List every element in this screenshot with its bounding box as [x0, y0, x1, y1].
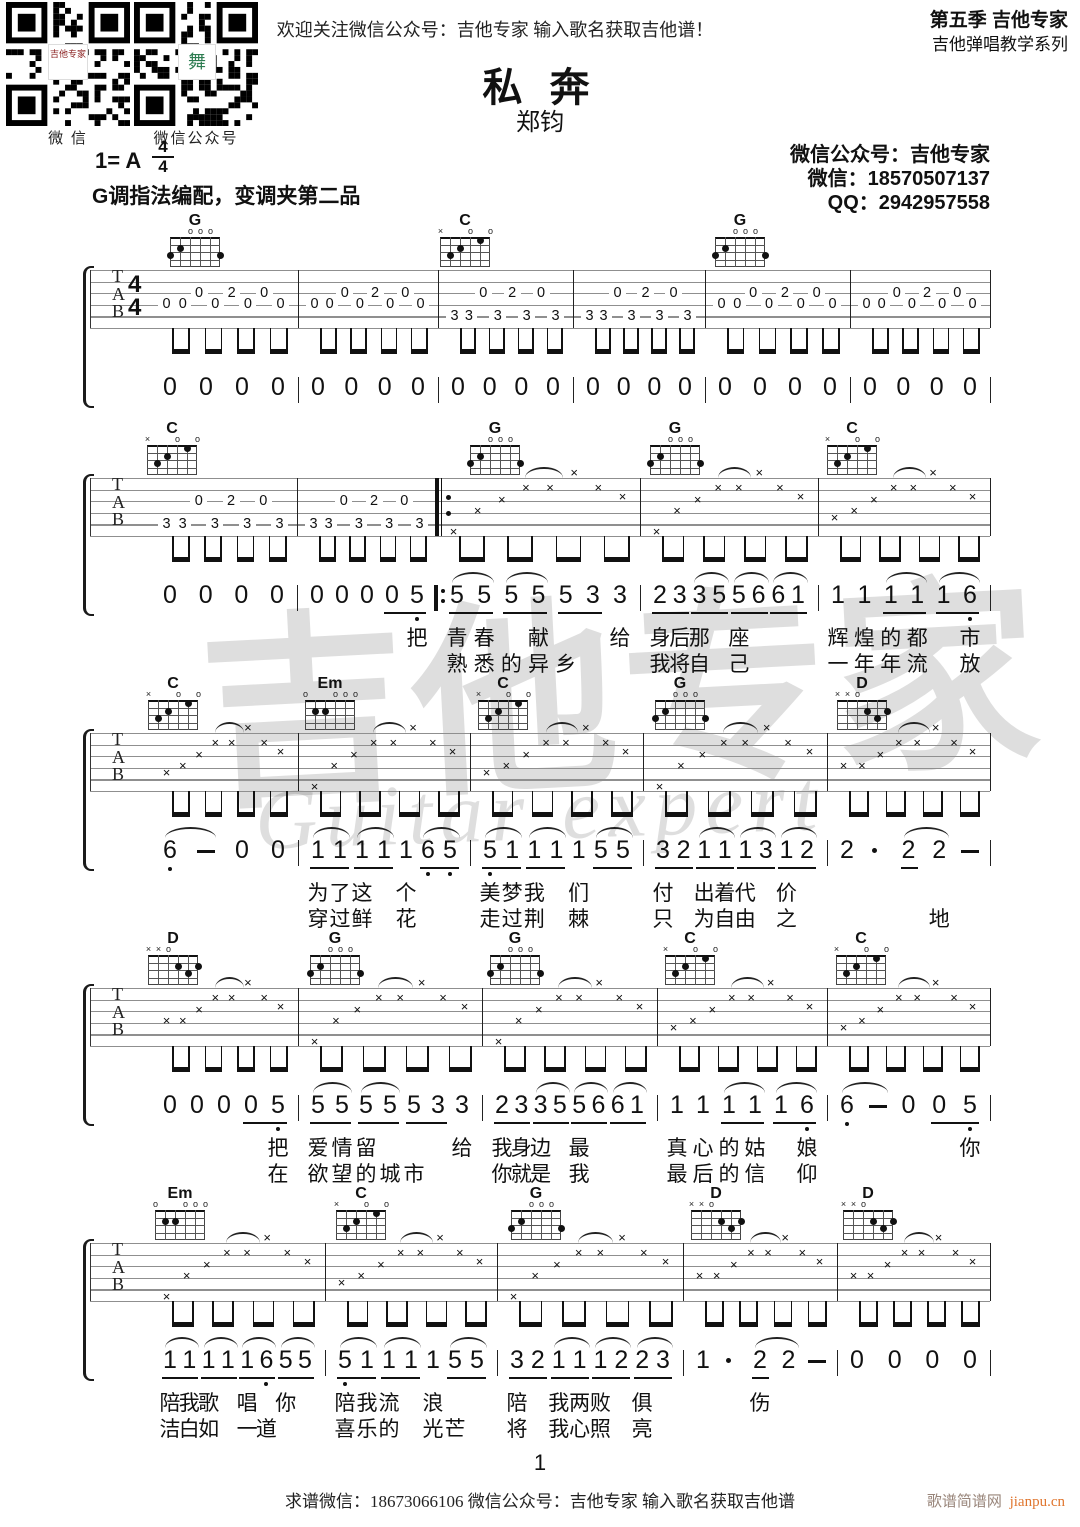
staff-line — [90, 791, 990, 792]
jianpu-note-number: 5 — [308, 1092, 328, 1119]
jianpu-note-number: 0 — [160, 374, 180, 401]
chord-open-marker: o — [524, 689, 533, 699]
chord-finger-dot — [853, 963, 860, 970]
jianpu-low-octave-dot — [264, 1382, 268, 1386]
jianpu-barline — [643, 840, 644, 866]
chord-muted-marker: × — [823, 434, 832, 444]
chord-name: G — [645, 675, 715, 693]
chord-muted-marker: × — [474, 689, 483, 699]
note-beam — [237, 349, 255, 354]
strum-x-note: × — [964, 744, 981, 760]
jianpu-note-number: 2 — [492, 1092, 512, 1119]
note-beam — [237, 812, 255, 817]
chord-open-marker: o — [676, 434, 685, 444]
strum-x-note: × — [471, 1254, 488, 1270]
strum-x-note: × — [905, 480, 922, 496]
lyric-line2-char: 乡 — [554, 648, 578, 678]
chord-open-marker: o — [751, 226, 760, 236]
jianpu-note-number: 0 — [241, 1092, 261, 1119]
strum-x-note: × — [392, 990, 409, 1006]
barline — [438, 270, 439, 328]
lyric-line2-char: 棘 — [567, 903, 591, 933]
jianpu-beam-underline — [420, 867, 459, 869]
note-beam — [923, 812, 943, 817]
chord-grid-fret — [147, 453, 197, 454]
tab-fret-number: 0 — [191, 285, 208, 301]
strum-x-note: × — [538, 735, 555, 751]
note-beam — [172, 812, 190, 817]
jianpu-note-number: 0 — [308, 374, 328, 401]
tab-fret-number: 0 — [713, 296, 730, 312]
jianpu-low-octave-dot — [448, 872, 452, 876]
staff-line — [90, 490, 990, 491]
strum-x-note: × — [614, 1230, 631, 1246]
jianpu-barline — [573, 377, 574, 403]
barline — [990, 733, 991, 791]
chord-muted-marker: × — [833, 689, 842, 699]
jianpu-note-number: 6 — [837, 1092, 857, 1119]
chord-open-marker: o — [193, 434, 202, 444]
tab-fret-number: 0 — [255, 493, 272, 509]
jianpu-note-number: 6 — [160, 837, 180, 864]
page-number: 1 — [0, 1450, 1080, 1476]
jianpu-beam-underline — [558, 612, 602, 614]
strum-x-note: × — [853, 1013, 870, 1029]
jianpu-note-number: 5 — [501, 582, 521, 609]
strum-x-note: × — [365, 735, 382, 751]
jianpu-note-number: 2 — [674, 837, 694, 864]
jianpu-note-number: 1 — [502, 837, 522, 864]
note-beam — [270, 1067, 288, 1072]
strum-x-note: × — [198, 1257, 215, 1273]
barline — [325, 1243, 326, 1301]
chord-finger-dot — [172, 1218, 179, 1225]
tie-arc — [898, 977, 929, 988]
jianpu-note-number: 1 — [374, 837, 394, 864]
jianpu-note-number: 0 — [614, 374, 634, 401]
jianpu-note-number: 6 — [749, 582, 769, 609]
jianpu-note-number: 0 — [382, 582, 402, 609]
chord-finger-dot — [864, 445, 871, 452]
jianpu-note-number: 0 — [860, 374, 880, 401]
jianpu-barline — [990, 840, 991, 866]
jianpu-note-number: 1 — [396, 837, 416, 864]
jianpu-beam-underline — [354, 867, 393, 869]
jianpu-dot — [726, 1358, 731, 1363]
chord-finger-dot — [162, 1218, 169, 1225]
note-beam — [406, 1067, 429, 1072]
strum-x-note: × — [372, 1257, 389, 1273]
jianpu-note-number: 0 — [960, 1347, 980, 1374]
note-beam — [319, 557, 336, 562]
jianpu-beam-underline — [936, 612, 979, 614]
note-beam — [886, 1067, 906, 1072]
jianpu-barline — [438, 377, 439, 403]
strum-x-note: × — [570, 1245, 587, 1261]
jianpu-beam-underline — [243, 1122, 287, 1124]
strum-x-note: × — [611, 990, 628, 1006]
chord-grid-fret — [336, 1233, 386, 1234]
chord-muted-marker: × — [687, 1199, 696, 1209]
note-beam — [757, 1067, 778, 1072]
chord-open-marker: o — [853, 689, 862, 699]
chord-finger-dot — [155, 715, 162, 722]
tab-fret-number: 0 — [808, 285, 825, 301]
jianpu-beam-underline — [883, 612, 926, 614]
staff-line — [90, 478, 990, 479]
note-beam — [253, 1322, 275, 1327]
strum-x-note: × — [964, 999, 981, 1015]
chord-open-marker: o — [174, 689, 183, 699]
jianpu-note-number: 1 — [570, 1347, 590, 1374]
tie-arc — [558, 977, 591, 988]
strum-x-note: × — [742, 1245, 759, 1261]
chord-open-marker: o — [862, 944, 871, 954]
lyric-line2-char: 放 — [958, 648, 982, 678]
note-beam — [849, 1067, 869, 1072]
jianpu-barline — [683, 1350, 684, 1376]
chord-finger-dot — [485, 715, 492, 722]
chord-open-marker: o — [331, 689, 340, 699]
jianpu-note-number: 0 — [196, 582, 216, 609]
note-beam — [320, 1067, 343, 1072]
strum-x-note: × — [794, 1245, 811, 1261]
note-beam — [705, 1322, 724, 1327]
strum-x-note: × — [158, 1013, 175, 1029]
strum-x-note: × — [191, 747, 208, 763]
jianpu-dot — [872, 848, 877, 853]
strum-x-note: × — [435, 990, 452, 1006]
chord-finger-dot — [457, 245, 464, 252]
note-beam — [651, 349, 667, 354]
chord-grid-fret — [715, 260, 765, 261]
chord-open-marker: o — [196, 226, 205, 236]
barline — [990, 270, 991, 328]
jianpu-note-number: 2 — [837, 837, 857, 864]
jianpu-repeat-barline — [434, 585, 438, 611]
jianpu-low-octave-dot — [343, 1382, 347, 1386]
strum-x-note: × — [657, 1254, 674, 1270]
strum-x-note: × — [518, 747, 535, 763]
strum-x-note: × — [780, 735, 797, 751]
jianpu-beam-underline — [494, 1122, 530, 1124]
strum-x-note: × — [835, 1020, 852, 1036]
tab-fret-number: 0 — [729, 296, 746, 312]
chord-finger-dot — [185, 700, 192, 707]
jianpu-note-number: 2 — [779, 1347, 799, 1374]
jianpu-barline — [640, 585, 641, 611]
jianpu-beam-underline — [406, 1122, 447, 1124]
jianpu-beam-underline — [381, 1377, 420, 1379]
tab-fret-number: 3 — [518, 308, 535, 324]
chord-open-marker: o — [466, 226, 475, 236]
jianpu-note-number: 0 — [196, 374, 216, 401]
strum-x-note: × — [469, 503, 486, 519]
chord-open-marker: o — [486, 226, 495, 236]
jianpu-note-number: 1 — [693, 1092, 713, 1119]
jianpu-beam-underline — [447, 1377, 486, 1379]
tab-fret-number: 3 — [547, 308, 564, 324]
jianpu-note-number: 5 — [529, 582, 549, 609]
chord-finger-dot — [508, 1225, 515, 1232]
lyric-line2-char: 光 — [421, 1413, 445, 1443]
barline — [827, 733, 828, 791]
jianpu-beam-underline — [652, 612, 689, 614]
lyric-line2-char: 由 — [733, 903, 757, 933]
strum-x-note: × — [413, 975, 430, 991]
strum-x-note: × — [451, 1245, 468, 1261]
tab-fret-number: 3 — [411, 516, 428, 532]
staff-line — [90, 524, 990, 525]
chord-grid-fret — [837, 723, 887, 724]
lyric-line1-char: 给 — [608, 622, 632, 652]
jianpu-note-number: 1 — [715, 837, 735, 864]
strum-x-note: × — [510, 1013, 527, 1029]
note-beam — [399, 812, 420, 817]
lyric-line2-char: 市 — [402, 1158, 426, 1188]
barline — [818, 478, 819, 536]
jianpu-note-number: 5 — [335, 1347, 355, 1374]
jianpu-note-number: 2 — [650, 582, 670, 609]
jianpu-low-octave-dot — [968, 617, 972, 621]
jianpu-note-number: 0 — [785, 374, 805, 401]
lyric-line2-char: 将 — [505, 1413, 529, 1443]
site-name: 歌谱简谱网 — [927, 1494, 1002, 1510]
chord-muted-marker: × — [832, 944, 841, 954]
strum-x-note: × — [835, 758, 852, 774]
jianpu-beam-underline — [526, 867, 565, 869]
lyric-line2-char: 信 — [743, 1158, 767, 1188]
jianpu-low-octave-dot — [426, 872, 430, 876]
note-beam — [460, 349, 476, 354]
jianpu-note-number: 0 — [675, 374, 695, 401]
barline — [657, 988, 658, 1046]
jianpu-note-number: 5 — [613, 837, 633, 864]
tie-arc — [718, 467, 752, 478]
strum-x-note: × — [548, 1257, 565, 1273]
chord-open-marker: o — [506, 944, 515, 954]
repeat-barline-thin — [441, 478, 442, 536]
jianpu-note-number: 5 — [440, 837, 460, 864]
jianpu-barline — [482, 1095, 483, 1121]
jianpu-low-octave-dot — [805, 1127, 809, 1131]
chord-grid-fret — [843, 1233, 893, 1234]
chord-finger-dot — [864, 708, 871, 715]
tie-arc — [373, 722, 406, 733]
jianpu-note-number: 1 — [693, 1347, 713, 1374]
jianpu-barline — [705, 377, 706, 403]
chord-finger-dot — [728, 1225, 735, 1232]
jianpu-note-number: 1 — [881, 582, 901, 609]
lyric-line2-char: 我 — [567, 1158, 591, 1188]
jianpu-note-number: 0 — [231, 582, 251, 609]
chord-open-marker: o — [351, 689, 360, 699]
chord-open-marker: o — [741, 226, 750, 236]
chord-muted-marker: × — [849, 1199, 858, 1209]
jianpu-note-number: 0 — [960, 374, 980, 401]
jianpu-beam-underline — [278, 1377, 314, 1379]
jianpu-barline — [297, 585, 298, 611]
lyric-line2-char: 乐 — [355, 1413, 379, 1443]
strum-x-note: × — [964, 1254, 981, 1270]
note-beam — [902, 349, 919, 354]
jianpu-note-number: 3 — [653, 1347, 673, 1374]
jianpu-note-number: 5 — [556, 582, 576, 609]
tab-fret-number: 3 — [206, 516, 223, 532]
chord-open-marker: o — [382, 1199, 391, 1209]
note-beam — [459, 557, 485, 562]
chord-muted-marker: × — [144, 689, 153, 699]
jianpu-beam-underline — [691, 612, 728, 614]
chord-open-marker: o — [362, 1199, 371, 1209]
chord-open-marker: o — [691, 944, 700, 954]
chord-grid-fret — [655, 715, 705, 716]
chord-muted-marker: × — [843, 689, 852, 699]
chord-finger-dot — [317, 963, 324, 970]
jianpu-note-number: 0 — [893, 374, 913, 401]
jianpu-note-number: 3 — [756, 837, 776, 864]
tab-fret-number: 3 — [651, 308, 668, 324]
jianpu-note-number: 0 — [232, 837, 252, 864]
chord-grid-fret — [490, 970, 540, 971]
note-beam — [349, 557, 366, 562]
note-beam — [386, 1322, 407, 1327]
jianpu-low-octave-dot — [845, 1122, 849, 1126]
chord-open-marker: o — [882, 944, 891, 954]
tab-clef-letter: B — [112, 301, 124, 322]
strum-x-note: × — [498, 758, 515, 774]
tab-fret-number: 0 — [533, 285, 550, 301]
staff-line — [90, 316, 990, 317]
strum-x-note: × — [964, 489, 981, 505]
jianpu-note-number: 1 — [308, 837, 328, 864]
strum-x-note: × — [723, 990, 740, 1006]
strum-x-note: × — [550, 990, 567, 1006]
chord-grid-fret — [665, 963, 715, 964]
strum-x-note: × — [846, 503, 863, 519]
jianpu-note-number: 5 — [268, 1092, 288, 1119]
chord-finger-dot — [672, 970, 679, 977]
note-beam — [859, 1322, 878, 1327]
jianpu-note-number: 1 — [788, 582, 808, 609]
chord-open-marker: o — [194, 689, 203, 699]
tab-fret-number: 0 — [174, 296, 191, 312]
lyric-line1-char: 你 — [274, 1387, 298, 1417]
chord-muted-marker: × — [661, 944, 670, 954]
note-beam — [595, 349, 611, 354]
chord-grid-fret — [827, 453, 877, 454]
jianpu-note-number: 1 — [547, 837, 567, 864]
jianpu-dash — [197, 850, 215, 853]
chord-muted-marker: × — [436, 226, 445, 236]
tab-fret-number: 2 — [776, 285, 793, 301]
jianpu-barline — [298, 1095, 299, 1121]
jianpu-note-number: 1 — [218, 1347, 238, 1374]
jianpu-note-number: 5 — [480, 837, 500, 864]
chord-finger-dot — [517, 460, 524, 467]
chord-grid-fret — [470, 460, 520, 461]
note-beam — [961, 1322, 980, 1327]
jianpu-beam-underline — [449, 612, 493, 614]
strum-x-note: × — [424, 735, 441, 751]
chord-finger-dot — [682, 963, 689, 970]
tab-fret-number: 2 — [366, 493, 383, 509]
jianpu-note-number: 3 — [670, 582, 690, 609]
chord-finger-dot — [175, 963, 182, 970]
chord-grid-fret — [336, 1218, 386, 1219]
note-beam — [237, 557, 255, 562]
strum-x-note: × — [223, 735, 240, 751]
jianpu-beam-underline — [737, 867, 775, 869]
strum-x-note: × — [782, 990, 799, 1006]
jianpu-note-number: 0 — [511, 374, 531, 401]
tab-clef-letter: B — [112, 1019, 124, 1040]
chord-grid-fret — [715, 252, 765, 253]
jianpu-beam-underline — [931, 1122, 979, 1124]
jianpu-note-number: 0 — [847, 1347, 867, 1374]
barline — [643, 733, 644, 791]
note-beam — [172, 557, 190, 562]
note-beam — [739, 1322, 758, 1327]
strum-x-note: × — [758, 720, 775, 736]
chord-finger-dot — [477, 453, 484, 460]
chord-muted-marker: × — [154, 944, 163, 954]
jianpu-note-number: 0 — [543, 374, 563, 401]
tab-fret-number: 3 — [320, 516, 337, 532]
lyric-line2-char: 最 — [665, 1158, 689, 1188]
note-beam — [625, 1067, 647, 1072]
note-beam — [562, 1322, 585, 1327]
jianpu-note-number: 0 — [820, 374, 840, 401]
chord-finger-dot — [880, 1225, 887, 1232]
jianpu-note-number: 1 — [735, 837, 755, 864]
jianpu-note-number: 1 — [719, 1092, 739, 1119]
lyric-line1-char: 伤 — [748, 1387, 772, 1417]
strum-x-note: × — [191, 1002, 208, 1018]
staff-line — [90, 270, 990, 271]
tab-fret-number: 0 — [745, 285, 762, 301]
jianpu-note-number: 3 — [507, 1347, 527, 1374]
note-beam — [270, 812, 288, 817]
jianpu-note-number: 5 — [276, 1347, 296, 1374]
jianpu-note-number: 1 — [160, 1347, 180, 1374]
chord-open-marker: o — [537, 1199, 546, 1209]
lyric-line1-char: 给 — [450, 1132, 474, 1162]
jianpu-note-number: 1 — [330, 837, 350, 864]
jianpu-note-number: 5 — [445, 1347, 465, 1374]
lyric-line2-char: 异 — [527, 648, 551, 678]
lyric-line2-char: 自 — [687, 648, 711, 678]
jianpu-note-number: 0 — [922, 1347, 942, 1374]
jianpu-note-number: 6 — [768, 582, 788, 609]
jianpu-beam-underline — [773, 1122, 816, 1124]
chord-open-marker: o — [181, 1199, 190, 1209]
chord-finger-dot — [322, 708, 329, 715]
jianpu-barline — [990, 585, 991, 611]
strum-x-note: × — [751, 465, 768, 481]
tab-fret-number: 3 — [460, 308, 477, 324]
jianpu-note-number: 0 — [929, 1092, 949, 1119]
repeat-barline — [435, 478, 439, 536]
note-beam — [507, 557, 533, 562]
chord-grid-fret — [440, 245, 490, 246]
chord-finger-dot — [718, 1218, 725, 1225]
chord-open-marker: o — [301, 689, 310, 699]
chord-grid-fret — [305, 715, 355, 716]
jianpu-note-number: 3 — [428, 1092, 448, 1119]
chord-open-marker: o — [711, 944, 720, 954]
jianpu-note-number: 0 — [448, 374, 468, 401]
